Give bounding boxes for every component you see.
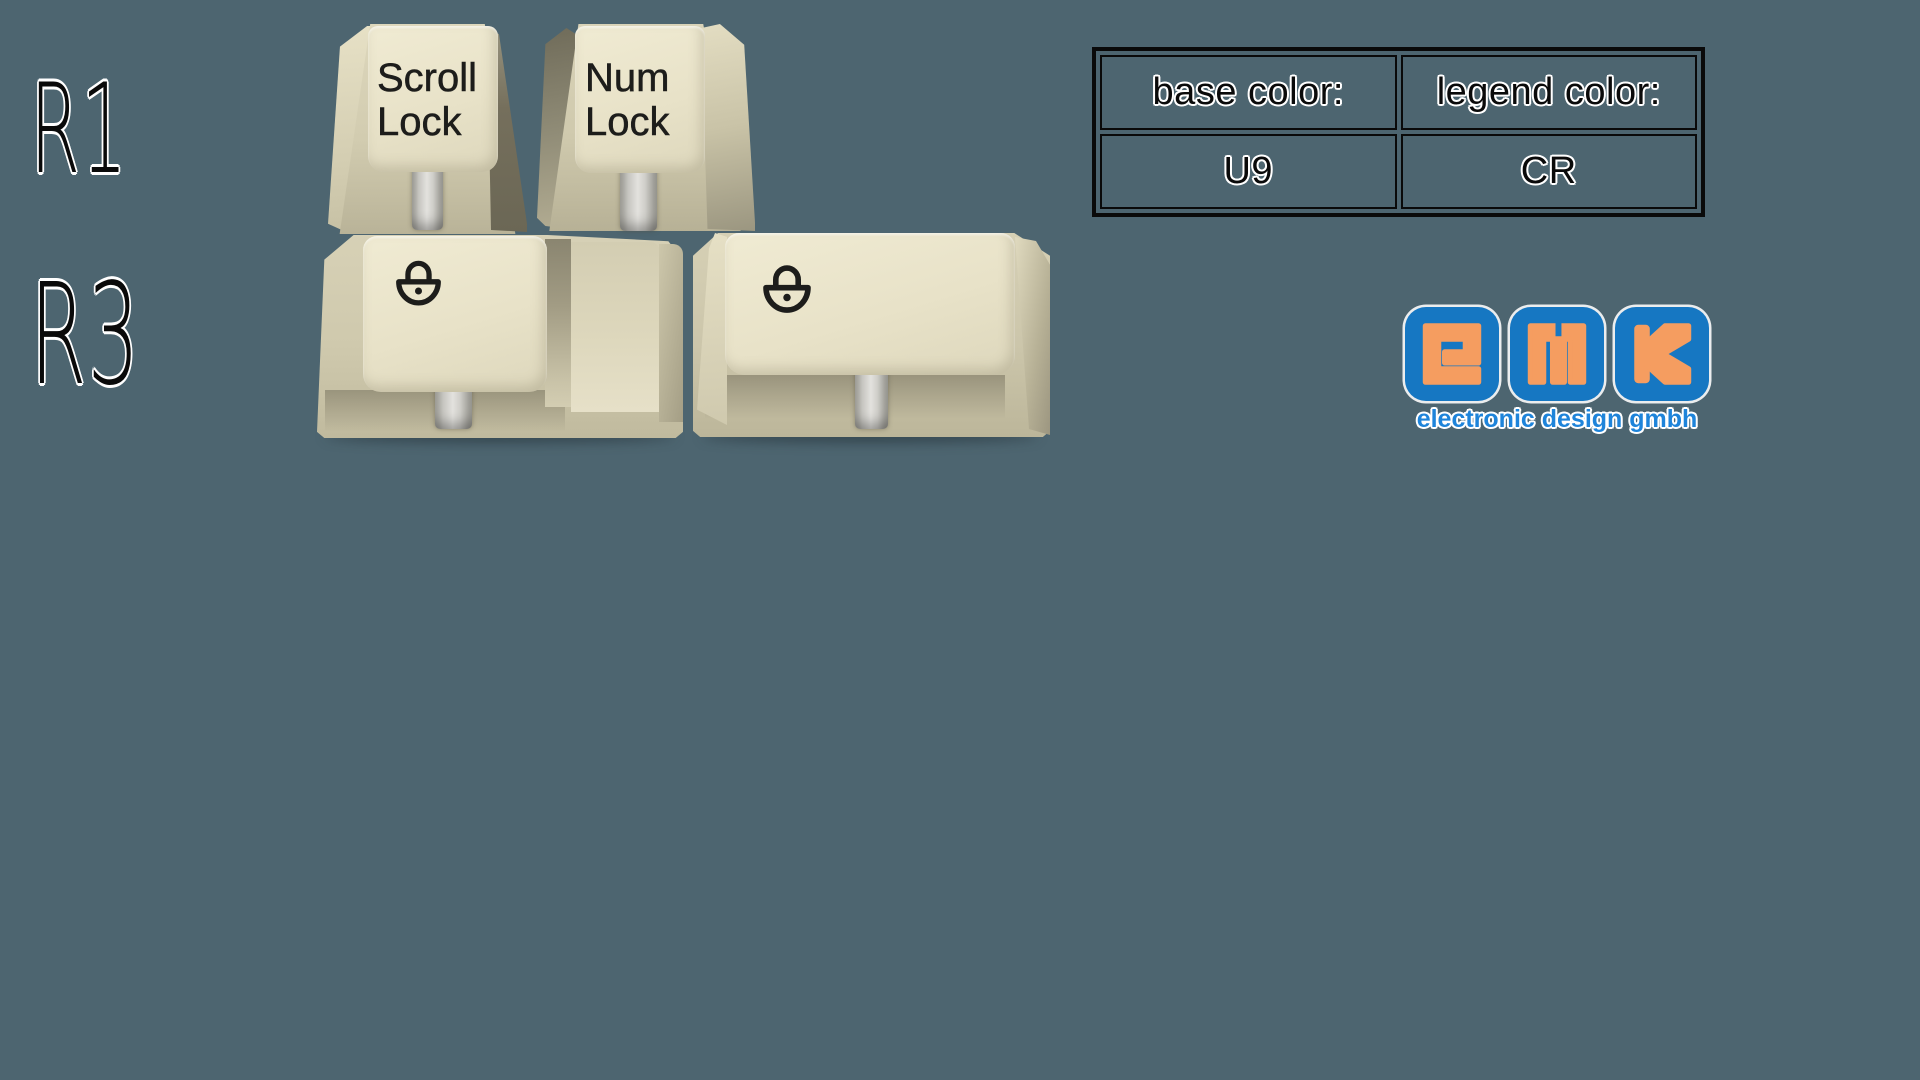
keycap-step-bevel: [659, 244, 683, 422]
keycap-stepped-lock: [317, 233, 683, 438]
color-spec-table: base color: legend color: U9 CR: [1092, 47, 1705, 217]
base-color-header: base color:: [1153, 71, 1344, 113]
legend-line1: Scroll: [377, 56, 477, 100]
keycap-step-face: [571, 242, 659, 412]
keycap-wide-lock: [693, 231, 1050, 437]
keycap-scroll-lock: Scroll Lock: [328, 22, 527, 234]
legend-color-header: legend color:: [1437, 71, 1661, 113]
keycap-face: [363, 236, 547, 392]
letter-m-glyph: [1520, 317, 1594, 391]
keycap-step-groove: [545, 239, 571, 407]
keycap-legend: Scroll Lock: [377, 56, 477, 144]
padlock-icon: [392, 255, 445, 313]
render-canvas: R1 R3 Scroll Lock Num Lock: [0, 0, 1920, 1080]
base-color-header-cell: base color:: [1100, 55, 1397, 130]
letter-g-glyph: [1415, 317, 1489, 391]
gmk-logo-letter-g: [1405, 307, 1499, 401]
keycap-num-lock: Num Lock: [537, 22, 755, 231]
legend-line2: Lock: [377, 100, 477, 144]
gmk-logo-tagline: electronic design gmbh: [1405, 405, 1709, 434]
gmk-logo-letter-m: [1510, 307, 1604, 401]
gmk-logo-letter-k: [1615, 307, 1709, 401]
legend-line1: Num: [585, 56, 670, 100]
letter-k-glyph: [1625, 317, 1699, 391]
legend-line2: Lock: [585, 100, 670, 144]
legend-color-value: CR: [1521, 150, 1577, 192]
legend-color-value-cell: CR: [1401, 134, 1698, 209]
padlock-icon: [759, 259, 815, 321]
keycap-legend: Num Lock: [585, 56, 670, 144]
row-label-r1: R1: [30, 68, 128, 192]
row-label-r3: R3: [30, 266, 140, 406]
legend-color-header-cell: legend color:: [1401, 55, 1698, 130]
base-color-value-cell: U9: [1100, 134, 1397, 209]
table-header-row: base color: legend color:: [1100, 55, 1697, 130]
keycap-side: [701, 24, 755, 231]
base-color-value: U9: [1223, 150, 1273, 192]
table-value-row: U9 CR: [1100, 134, 1697, 209]
